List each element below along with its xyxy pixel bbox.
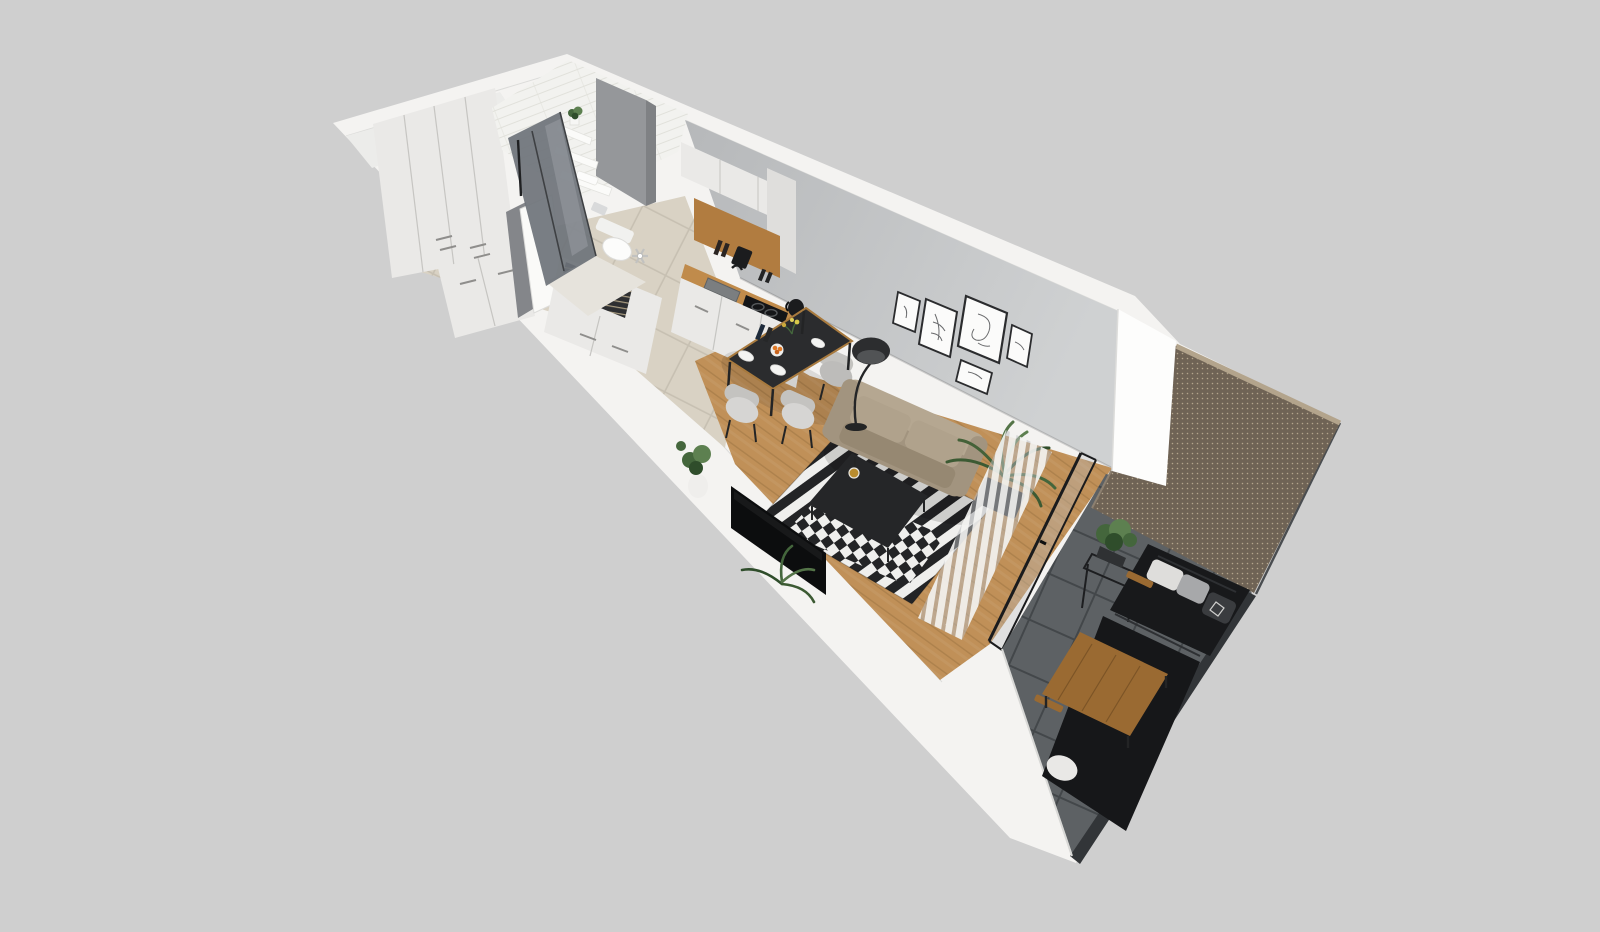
render-canvas <box>40 16 1600 916</box>
apartment-3d-floorplan-render <box>40 16 1600 916</box>
fruit-bowl <box>771 344 784 357</box>
drink-glass <box>849 468 859 478</box>
partition-edge <box>646 100 656 206</box>
